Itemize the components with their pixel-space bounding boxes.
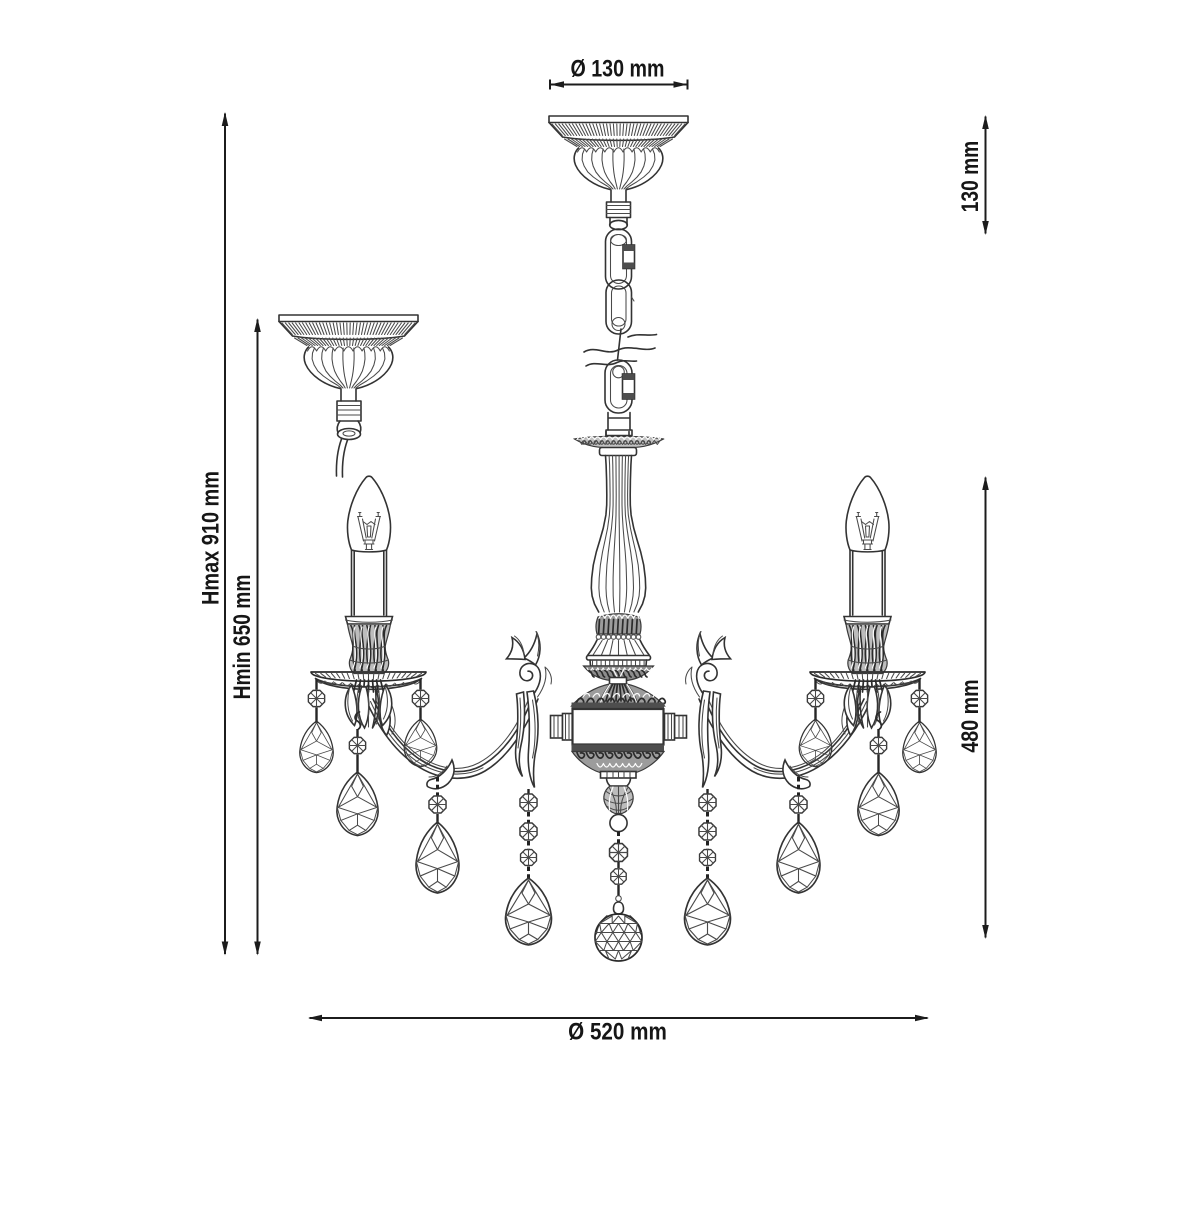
svg-text:Ø 520 mm: Ø 520 mm — [568, 1018, 667, 1045]
svg-text:480 mm: 480 mm — [956, 679, 983, 752]
svg-text:Hmax 910 mm: Hmax 910 mm — [197, 471, 224, 605]
svg-text:Ø 130 mm: Ø 130 mm — [570, 55, 664, 82]
svg-text:Hmin 650 mm: Hmin 650 mm — [228, 575, 256, 700]
svg-text:130 mm: 130 mm — [956, 141, 984, 212]
